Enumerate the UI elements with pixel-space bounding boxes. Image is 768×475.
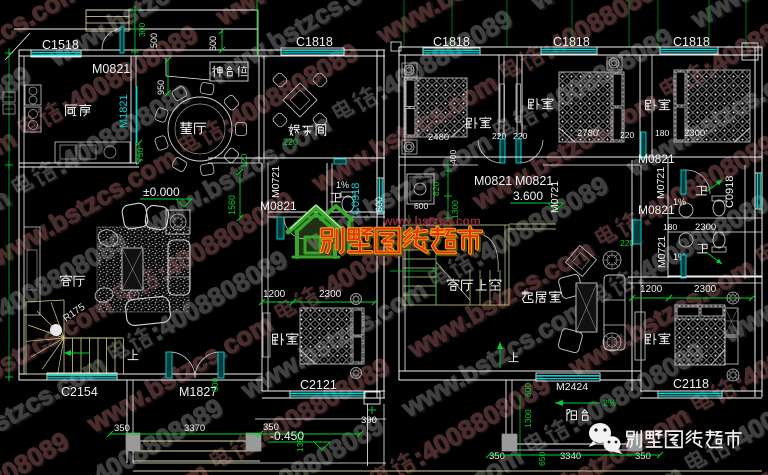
svg-text:C1518: C1518 <box>42 38 79 52</box>
svg-text:3340: 3340 <box>560 451 581 462</box>
svg-text:600: 600 <box>208 36 218 51</box>
svg-text:C2118: C2118 <box>673 377 709 391</box>
svg-text:1200: 1200 <box>263 289 286 300</box>
svg-text:1350: 1350 <box>295 433 305 452</box>
svg-text:C0918: C0918 <box>724 176 736 208</box>
svg-text:3370: 3370 <box>184 423 205 434</box>
svg-text:2480: 2480 <box>428 132 449 143</box>
svg-text:M2424: M2424 <box>556 381 588 393</box>
svg-text:C1818: C1818 <box>296 35 333 49</box>
svg-text:820: 820 <box>431 182 441 196</box>
svg-text:120: 120 <box>239 154 249 168</box>
svg-text:M0821: M0821 <box>638 152 675 166</box>
svg-text:www.bstzcs.com: www.bstzcs.com <box>382 214 481 228</box>
svg-text:300: 300 <box>137 23 147 37</box>
svg-text:2300: 2300 <box>694 284 717 295</box>
svg-text:600: 600 <box>523 383 533 397</box>
svg-text:390: 390 <box>361 415 377 426</box>
svg-text:950: 950 <box>156 80 166 95</box>
svg-text:M0721: M0721 <box>549 181 561 213</box>
svg-text:M0821: M0821 <box>515 174 553 188</box>
svg-text:2300: 2300 <box>319 289 342 300</box>
svg-text:M0821: M0821 <box>638 203 675 217</box>
svg-text:1%: 1% <box>336 180 349 190</box>
svg-text:600: 600 <box>210 378 220 392</box>
svg-text:220: 220 <box>620 130 634 140</box>
svg-text:600: 600 <box>374 197 384 212</box>
svg-text:3.600: 3.600 <box>513 189 543 203</box>
svg-text:1200: 1200 <box>640 284 663 295</box>
svg-text:2780: 2780 <box>577 128 598 139</box>
svg-text:±0.000: ±0.000 <box>143 185 180 199</box>
svg-text:C2121: C2121 <box>300 378 337 392</box>
svg-text:C1818: C1818 <box>433 35 470 49</box>
svg-text:2%: 2% <box>603 398 616 408</box>
svg-text:1300: 1300 <box>523 409 533 428</box>
svg-text:C1818: C1818 <box>553 35 590 49</box>
svg-text:1560: 1560 <box>227 195 237 215</box>
svg-text:180: 180 <box>663 222 677 232</box>
svg-text:750: 750 <box>135 148 145 162</box>
svg-text:600: 600 <box>414 201 428 211</box>
svg-text:M0821: M0821 <box>92 62 130 76</box>
svg-text:180: 180 <box>655 128 669 138</box>
svg-text:M0721: M0721 <box>270 166 282 198</box>
svg-text:2300: 2300 <box>684 128 705 139</box>
svg-text:M0721: M0721 <box>655 167 667 199</box>
svg-text:220: 220 <box>283 137 298 147</box>
svg-text:M0821: M0821 <box>260 199 297 213</box>
svg-text:350: 350 <box>635 451 651 462</box>
svg-text:350: 350 <box>114 423 130 434</box>
svg-text:650: 650 <box>537 452 547 466</box>
svg-text:C1818: C1818 <box>673 35 710 49</box>
svg-text:C0918: C0918 <box>350 183 362 215</box>
svg-text:M0821: M0821 <box>474 174 512 188</box>
svg-text:1%: 1% <box>673 197 686 207</box>
svg-text:C2154: C2154 <box>61 385 98 399</box>
svg-text:2300: 2300 <box>695 222 716 233</box>
svg-text:M0721: M0721 <box>656 236 668 268</box>
svg-text:400: 400 <box>448 150 458 164</box>
svg-text:M1821: M1821 <box>118 94 130 128</box>
svg-text:500: 500 <box>149 33 159 48</box>
